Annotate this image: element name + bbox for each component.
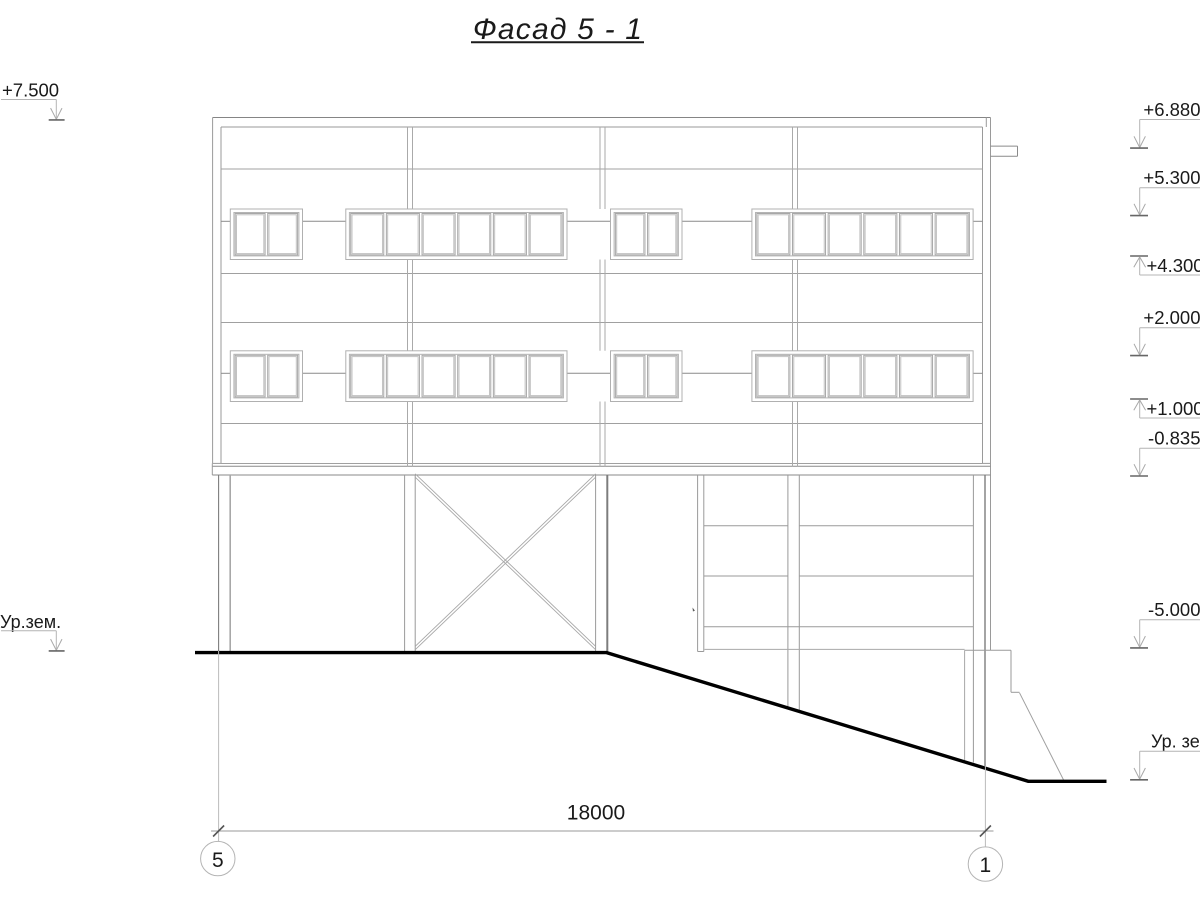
- svg-text:+1.000: +1.000: [1147, 398, 1200, 419]
- svg-text:+6.880: +6.880: [1143, 99, 1200, 120]
- svg-text:Ур.зем.: Ур.зем.: [0, 612, 61, 632]
- svg-text:Ур. зем.: Ур. зем.: [1151, 732, 1200, 752]
- svg-text:-0.835: -0.835: [1148, 428, 1200, 449]
- svg-text:+2.000: +2.000: [1143, 307, 1200, 328]
- svg-text:1: 1: [980, 854, 992, 877]
- svg-text:+4.300: +4.300: [1147, 255, 1200, 276]
- svg-text:+5.300: +5.300: [1143, 167, 1200, 188]
- svg-text:-5.000: -5.000: [1148, 599, 1200, 620]
- svg-text:+7.500: +7.500: [2, 80, 59, 101]
- svg-text:Фасад 5 - 1: Фасад 5 - 1: [473, 13, 643, 46]
- svg-text:18000: 18000: [567, 802, 625, 825]
- svg-text:5: 5: [212, 849, 224, 872]
